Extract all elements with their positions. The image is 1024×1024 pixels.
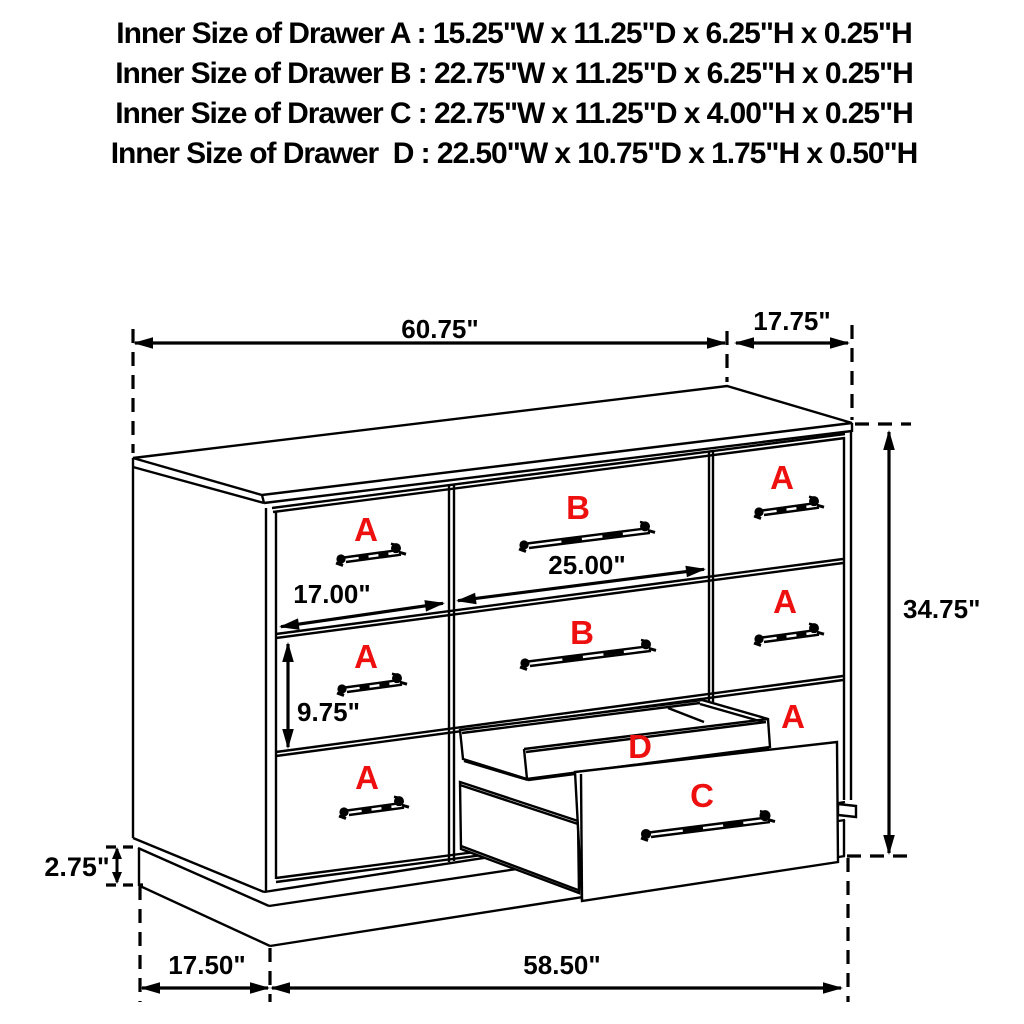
- svg-text:Inner Size of Drawer A : 15.25: Inner Size of Drawer A : 15.25"W x 11.25…: [116, 17, 911, 50]
- svg-text:Inner Size of Drawer D : 22.5: Inner Size of Drawer D : 22.50"W x 10.75…: [111, 137, 918, 170]
- svg-text:58.50": 58.50": [523, 950, 600, 980]
- svg-text:Inner Size of Drawer B : 22.75: Inner Size of Drawer B : 22.75"W x 11.25…: [115, 57, 913, 90]
- svg-text:34.75": 34.75": [903, 594, 980, 624]
- svg-text:17.50": 17.50": [168, 950, 245, 980]
- svg-text:B: B: [566, 489, 590, 526]
- svg-text:A: A: [773, 583, 797, 620]
- svg-text:60.75": 60.75": [401, 314, 478, 344]
- svg-text:B: B: [570, 614, 594, 651]
- svg-text:9.75": 9.75": [297, 697, 360, 727]
- svg-text:D: D: [628, 728, 652, 765]
- svg-text:Inner Size of Drawer C : 22.75: Inner Size of Drawer C : 22.75"W x 11.25…: [115, 97, 913, 130]
- svg-text:A: A: [781, 698, 805, 735]
- svg-text:A: A: [354, 511, 378, 548]
- svg-text:17.00": 17.00": [293, 579, 370, 609]
- svg-text:A: A: [354, 638, 378, 675]
- svg-text:C: C: [690, 777, 714, 814]
- svg-text:2.75": 2.75": [44, 852, 109, 882]
- svg-text:A: A: [355, 759, 379, 796]
- svg-text:25.00": 25.00": [548, 550, 625, 580]
- svg-text:17.75": 17.75": [753, 306, 830, 336]
- svg-text:A: A: [770, 459, 794, 496]
